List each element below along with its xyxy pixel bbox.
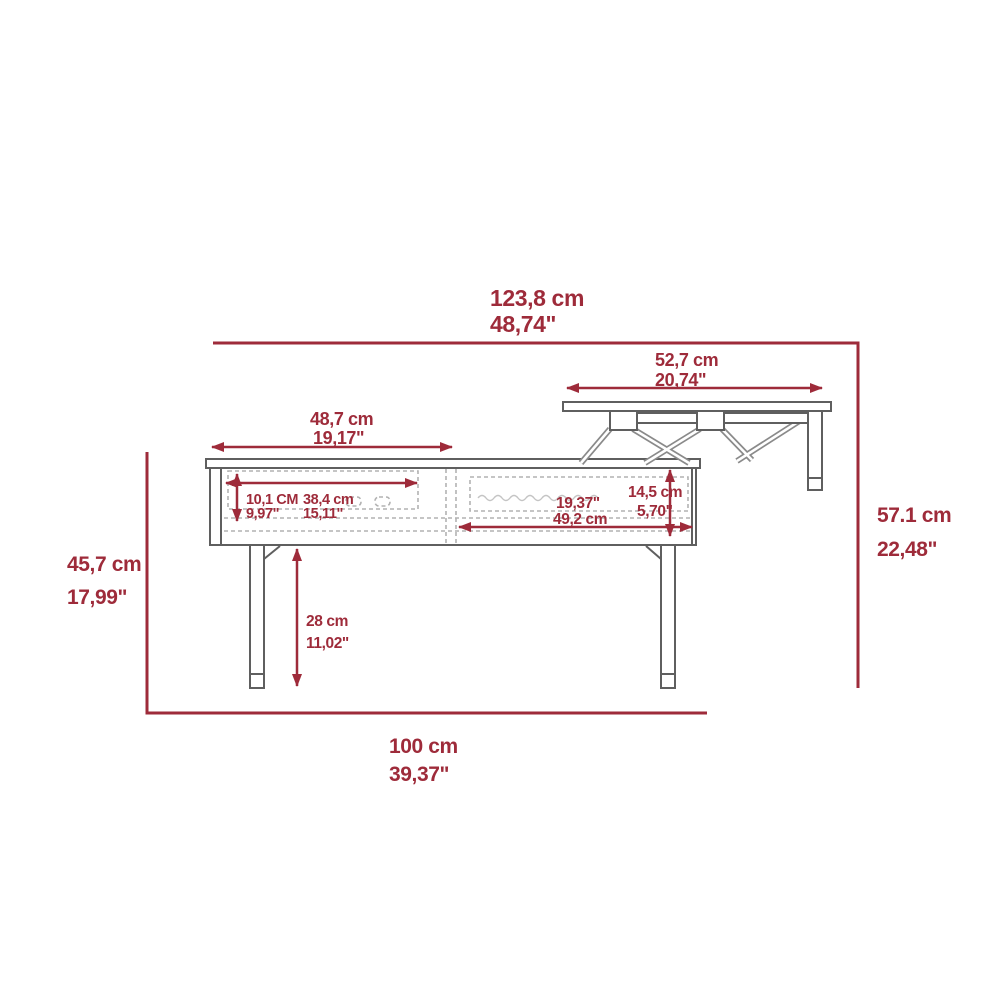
storage-height-in-label: 5,70" [637, 503, 673, 520]
storage-height-cm-label: 14,5 cm [628, 484, 682, 501]
right-leg [646, 545, 675, 688]
overall-height-cm-label: 57.1 cm [877, 504, 951, 527]
left-leg-brace [264, 546, 280, 559]
body-height-in-label: 17,99" [67, 586, 127, 609]
diagram-canvas: 123,8 cm 48,74" 52,7 cm 20,74" 48,7 cm 1… [0, 0, 1000, 1000]
lift-bracket-right [697, 411, 724, 430]
overall-height-in-label: 22,48" [877, 538, 937, 561]
left-leg [250, 545, 280, 688]
fixed-top-width-in-label: 19,17" [313, 428, 364, 448]
storage-width-in-label: 19,37" [556, 495, 600, 512]
drawer-width-in-label: 15,11" [303, 506, 343, 522]
lifted-top-width-cm-label: 52,7 cm [655, 350, 718, 370]
base-width-cm-label: 100 cm [389, 735, 458, 758]
lifted-top-width-in-label: 20,74" [655, 370, 706, 390]
lift-top-panel [563, 402, 831, 411]
overall-width-in-label: 48,74" [490, 311, 556, 337]
dimension-diagram: 123,8 cm 48,74" 52,7 cm 20,74" 48,7 cm 1… [0, 0, 1000, 1000]
drawer-height-in-label: 9,97" [246, 506, 279, 522]
storage-width-cm-label: 49,2 cm [553, 511, 607, 528]
base-width-in-label: 39,37" [389, 763, 449, 786]
right-leg-brace [646, 546, 661, 559]
fixed-top-width-cm-label: 48,7 cm [310, 409, 373, 429]
lift-top-leg [808, 411, 822, 490]
body-height-cm-label: 45,7 cm [67, 553, 141, 576]
lift-bracket-left [610, 411, 637, 430]
overall-width-cm-label: 123,8 cm [490, 285, 584, 311]
leg-clearance-cm-label: 28 cm [306, 613, 348, 630]
leg-clearance-in-label: 11,02" [306, 635, 349, 652]
coffee-table-drawing [206, 402, 831, 688]
body-top-panel [206, 459, 700, 468]
